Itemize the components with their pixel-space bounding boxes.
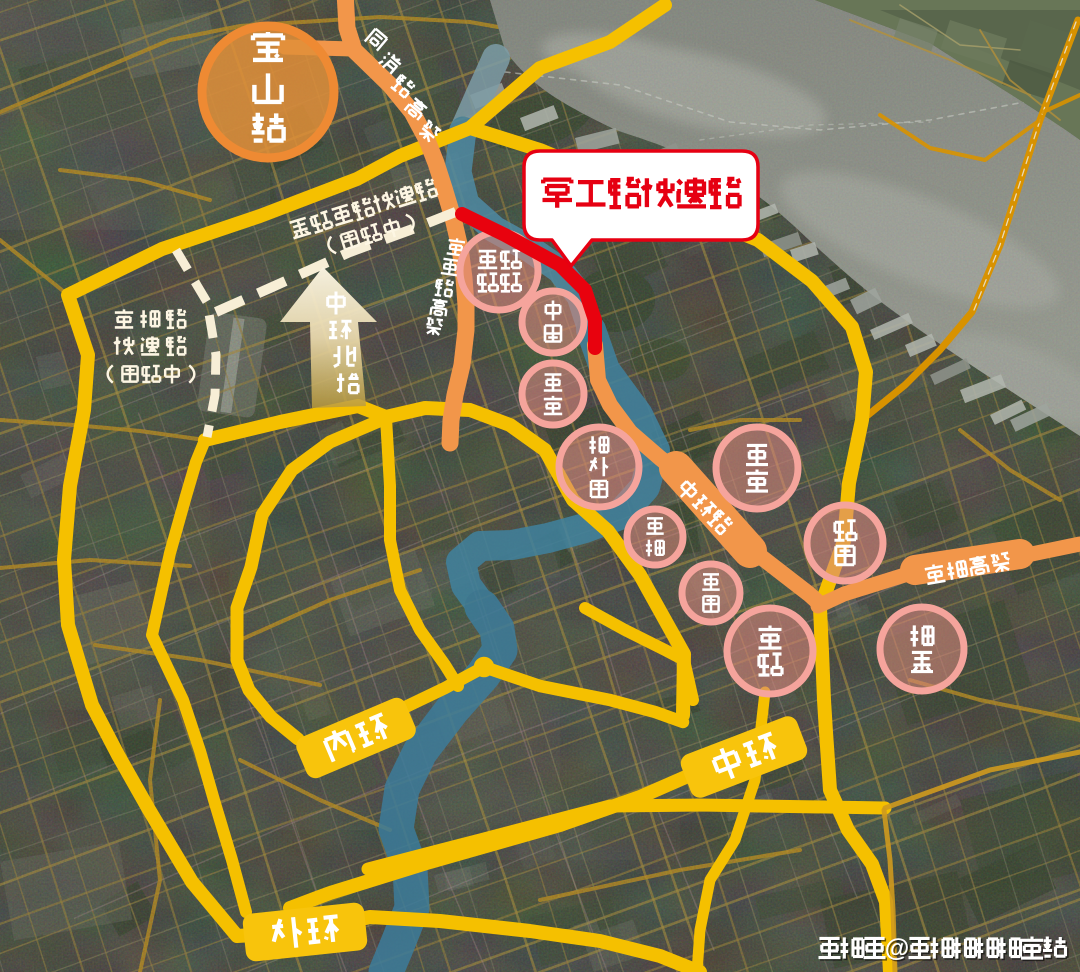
svg-text:@: @ (885, 934, 910, 962)
